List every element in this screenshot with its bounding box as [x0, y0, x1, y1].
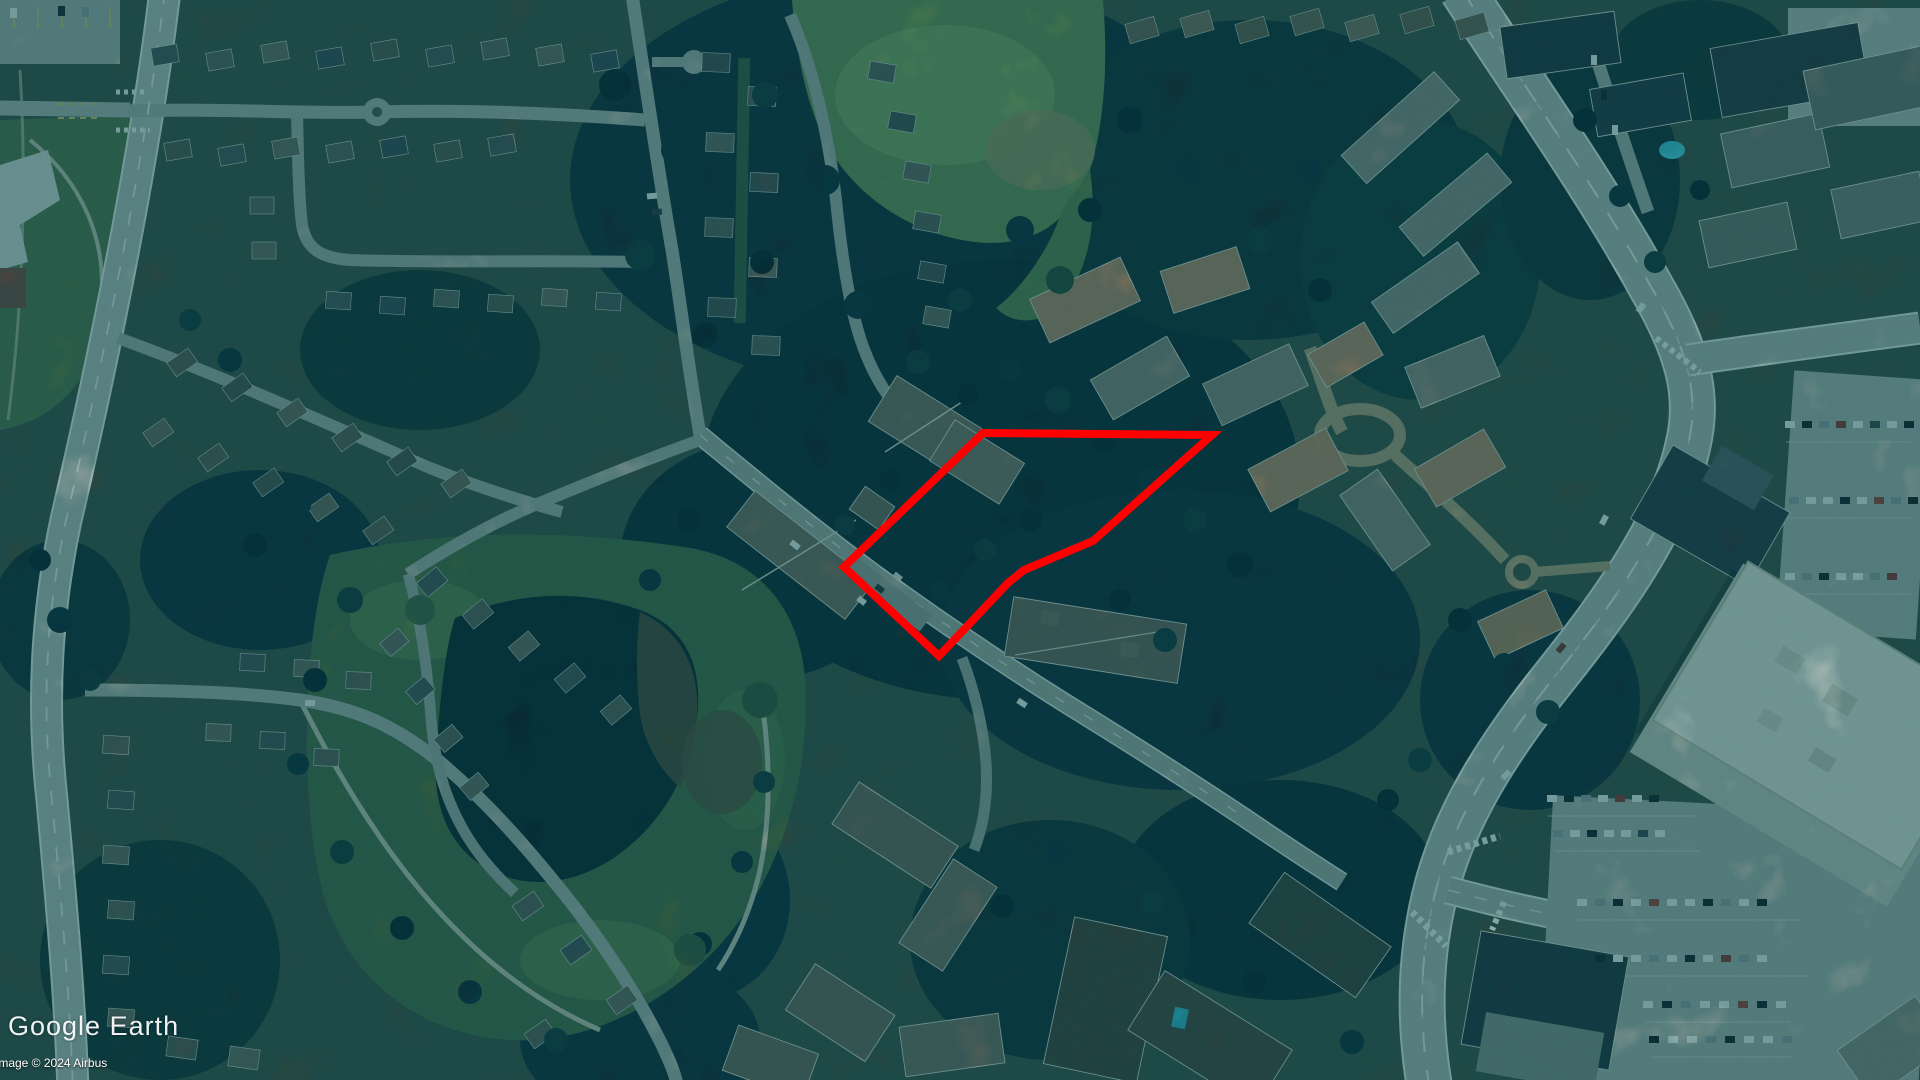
copyright-attribution: Image © 2024 Airbus [0, 1057, 107, 1069]
satellite-map[interactable]: Google Earth Image © 2024 Airbus [0, 0, 1920, 1080]
aerial-imagery [0, 0, 1920, 1080]
imagery-texture [0, 0, 1920, 1080]
google-earth-watermark: Google Earth [8, 1012, 179, 1042]
